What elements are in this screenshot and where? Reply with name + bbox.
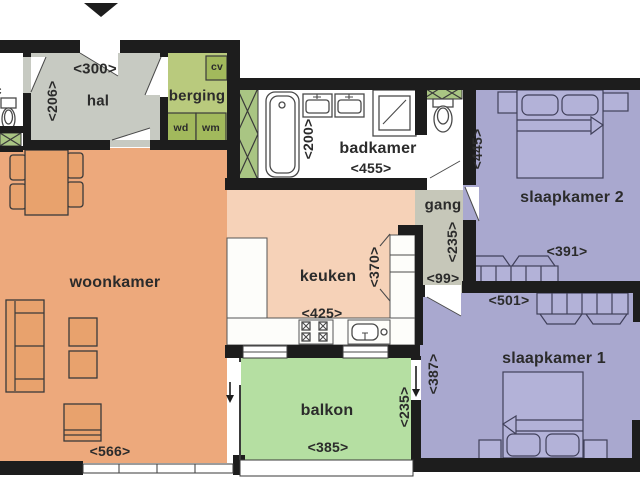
chair	[10, 155, 26, 180]
stove	[299, 320, 333, 344]
dim-gang-depth: <235>	[444, 222, 460, 263]
chair	[67, 153, 83, 178]
dim-badkamer-width: <455>	[351, 160, 392, 176]
dining-table	[25, 150, 68, 215]
dim-hal-depth: <206>	[44, 81, 60, 122]
bathtub	[266, 92, 299, 177]
room-label-slaapkamer1: slaapkamer 1	[502, 350, 606, 368]
bathroom-sink	[303, 94, 332, 117]
kitchen-sink	[348, 320, 390, 344]
dim-keuken-depth: <370>	[366, 247, 382, 288]
unit-label-wd: wd	[174, 122, 189, 134]
room-label-slaapkamer2: slaapkamer 2	[520, 189, 624, 207]
dim-slaapkamer1-depth: <387>	[425, 354, 441, 395]
room-label-keuken: keuken	[300, 268, 356, 286]
bedroom1-door-opening	[425, 285, 461, 297]
entrance-arrow-icon	[84, 3, 118, 17]
room-label-gang: gang	[425, 197, 462, 214]
toilet-badkamer	[433, 99, 453, 132]
chair	[10, 184, 26, 209]
dim-hal-width: <300>	[73, 61, 117, 78]
shower	[373, 90, 416, 136]
tv-cabinet	[64, 404, 101, 441]
pillow	[562, 95, 598, 115]
room-label-berging: berging	[169, 88, 225, 105]
nightstand	[603, 93, 628, 111]
sofa	[6, 300, 44, 392]
dim-slaapkamer2-width: <391>	[547, 243, 588, 259]
armchair	[69, 318, 97, 346]
entrance-opening	[80, 40, 120, 53]
dim-badkamer-depth: <200>	[300, 119, 316, 160]
dim-woonkamer-width: <566>	[90, 443, 131, 459]
dim-gang-width: <99>	[427, 270, 460, 286]
room-label-balkon: balkon	[301, 402, 354, 420]
dim-slaapkamer2-depth: <445>	[469, 129, 485, 170]
toilet-door-opening	[427, 178, 463, 190]
shaft-badkamer	[237, 88, 258, 180]
unit-label-wm: wm	[202, 122, 220, 134]
room-label-wc: wc	[0, 83, 2, 98]
nightstand	[498, 92, 517, 113]
unit-label-cv: cv	[211, 61, 223, 73]
pillow	[507, 434, 540, 456]
shaft-wc	[0, 133, 21, 146]
balcony-railing	[240, 460, 413, 476]
livingroom-window	[83, 464, 233, 473]
dim-balkon-width: <385>	[308, 439, 349, 455]
room-label-badkamer: badkamer	[339, 140, 416, 158]
dim-balkon-depth: <235>	[396, 387, 412, 428]
dim-slaapkamer1-width: <501>	[489, 292, 530, 308]
floor-plan: wc hal <300> <206> berging cv wd wm badk…	[0, 0, 640, 480]
room-label-hal: hal	[87, 93, 109, 110]
armchair	[69, 351, 97, 378]
room-label-woonkamer: woonkamer	[70, 274, 161, 292]
toilet-wc	[1, 98, 16, 130]
pillow	[546, 434, 579, 456]
chair	[67, 182, 83, 207]
bathroom-sink	[335, 94, 364, 117]
pillow	[522, 95, 558, 115]
dim-keuken-width: <425>	[302, 305, 343, 321]
